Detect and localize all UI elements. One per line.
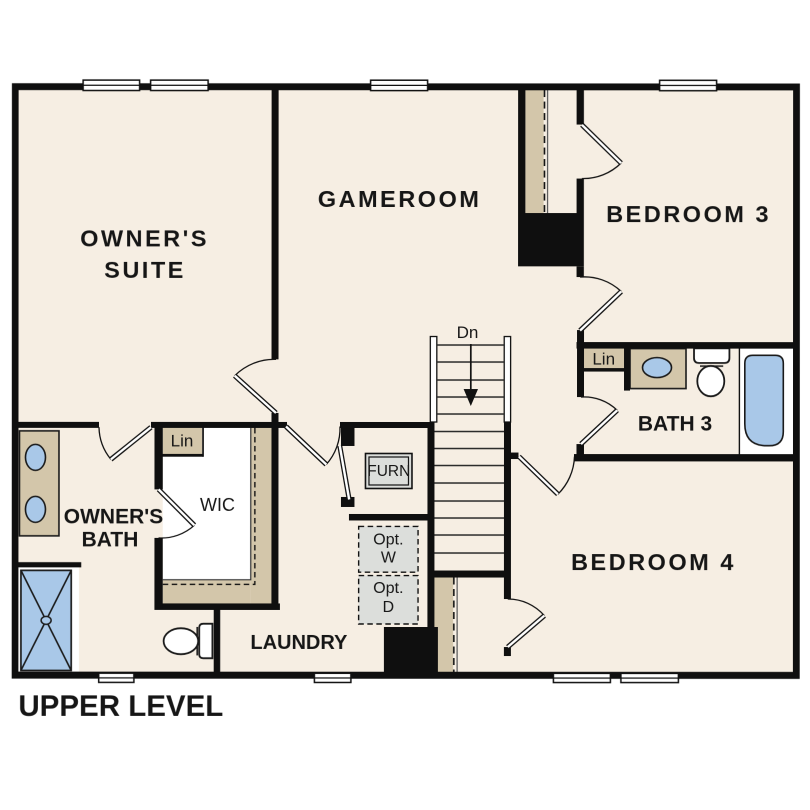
svg-text:BATH 3: BATH 3 [638,413,712,436]
svg-text:FURN: FURN [367,463,410,480]
svg-text:GAMEROOM: GAMEROOM [318,186,482,212]
svg-text:WIC: WIC [200,495,235,515]
svg-text:BEDROOM 3: BEDROOM 3 [606,201,771,227]
svg-text:Opt.: Opt. [373,580,403,597]
svg-text:UPPER LEVEL: UPPER LEVEL [18,690,223,723]
svg-text:LAUNDRY: LAUNDRY [250,632,348,654]
svg-text:Opt.: Opt. [373,531,403,548]
svg-text:OWNER'S: OWNER'S [80,225,209,251]
svg-text:SUITE: SUITE [104,257,186,283]
svg-text:OWNER'S: OWNER'S [64,505,164,528]
svg-text:Lin: Lin [592,349,615,368]
svg-text:BATH: BATH [82,528,139,551]
svg-text:Dn: Dn [457,323,479,342]
svg-text:BEDROOM 4: BEDROOM 4 [571,549,736,575]
svg-text:W: W [381,550,397,567]
svg-text:Lin: Lin [171,431,194,450]
svg-text:D: D [383,599,395,616]
